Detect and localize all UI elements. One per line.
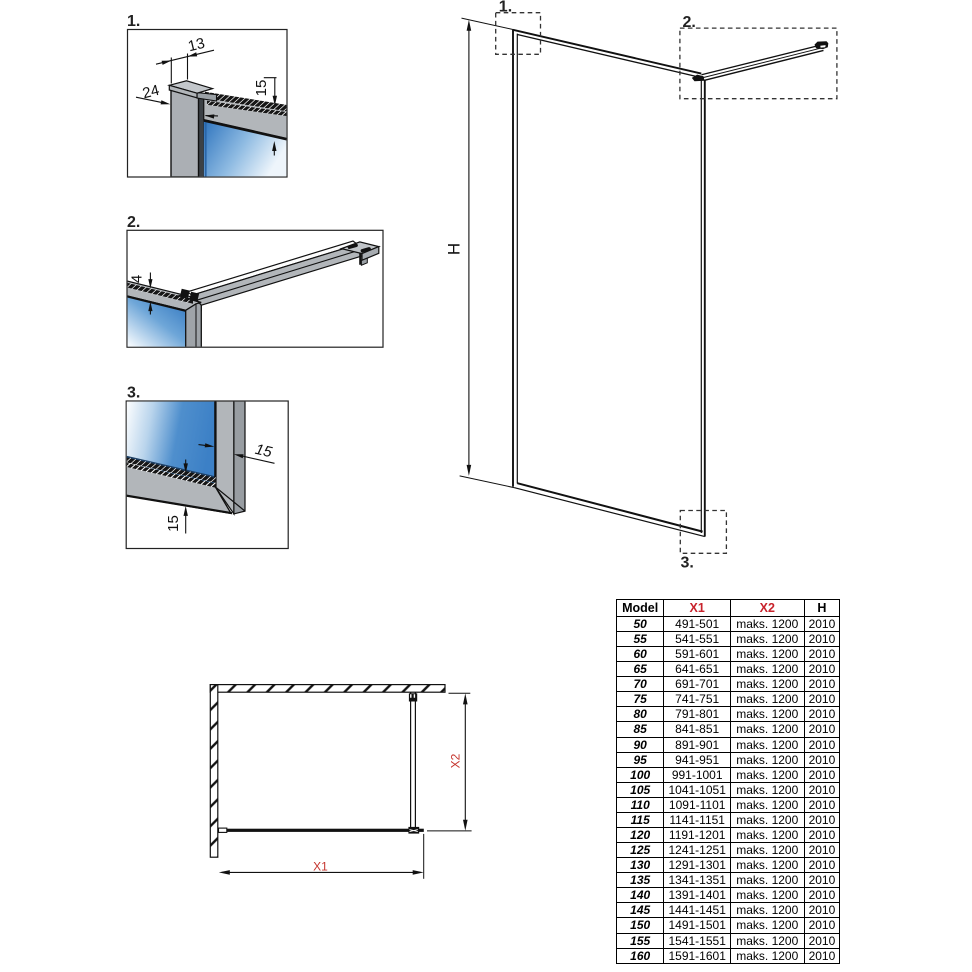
- svg-text:4: 4: [129, 275, 146, 283]
- svg-text:2.: 2.: [127, 214, 140, 231]
- svg-text:3.: 3.: [681, 555, 694, 572]
- svg-text:1.: 1.: [499, 0, 512, 15]
- svg-text:15: 15: [253, 80, 270, 97]
- svg-text:X2: X2: [449, 753, 463, 768]
- svg-text:15: 15: [165, 515, 182, 532]
- svg-text:1.: 1.: [127, 13, 140, 30]
- svg-text:H: H: [444, 243, 463, 255]
- svg-text:2.: 2.: [683, 14, 696, 31]
- svg-text:3.: 3.: [127, 385, 140, 402]
- svg-text:X1: X1: [313, 859, 328, 873]
